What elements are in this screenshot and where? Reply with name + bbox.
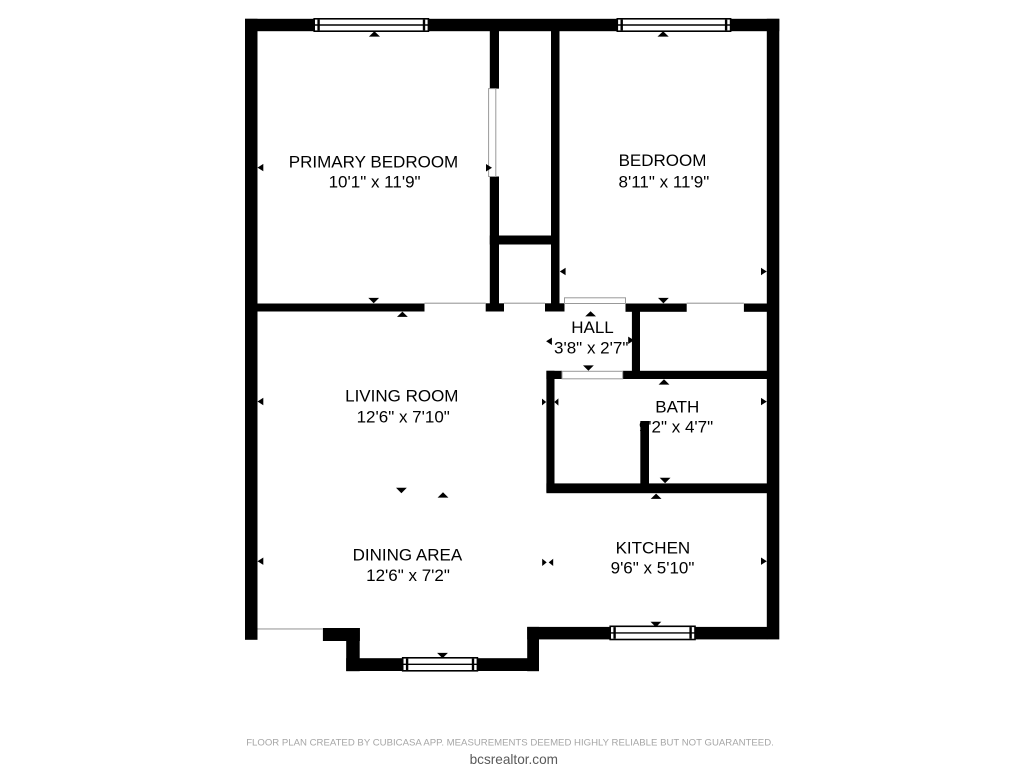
svg-text:10'1" x 11'9": 10'1" x 11'9"	[329, 172, 421, 191]
svg-text:8'11" x 11'9": 8'11" x 11'9"	[619, 172, 710, 191]
svg-text:BATH: BATH	[655, 397, 699, 416]
svg-text:LIVING ROOM: LIVING ROOM	[345, 387, 458, 406]
svg-text:3'8" x 2'7": 3'8" x 2'7"	[554, 338, 628, 357]
svg-text:12'6" x 7'10": 12'6" x 7'10"	[357, 408, 450, 427]
svg-text:bcsrealtor.com: bcsrealtor.com	[470, 752, 558, 767]
svg-text:12'6" x 7'2": 12'6" x 7'2"	[366, 566, 450, 585]
svg-text:PRIMARY BEDROOM: PRIMARY BEDROOM	[289, 153, 458, 172]
svg-text:DINING AREA: DINING AREA	[353, 546, 463, 565]
svg-text:9'6" x 5'10": 9'6" x 5'10"	[611, 558, 695, 577]
svg-text:KITCHEN: KITCHEN	[616, 538, 691, 557]
svg-text:HALL: HALL	[571, 318, 614, 337]
svg-text:BEDROOM: BEDROOM	[619, 151, 707, 170]
svg-text:FLOOR PLAN CREATED BY CUBICASA: FLOOR PLAN CREATED BY CUBICASA APP. MEAS…	[246, 738, 774, 749]
svg-text:9'2" x 4'7": 9'2" x 4'7"	[639, 418, 713, 437]
